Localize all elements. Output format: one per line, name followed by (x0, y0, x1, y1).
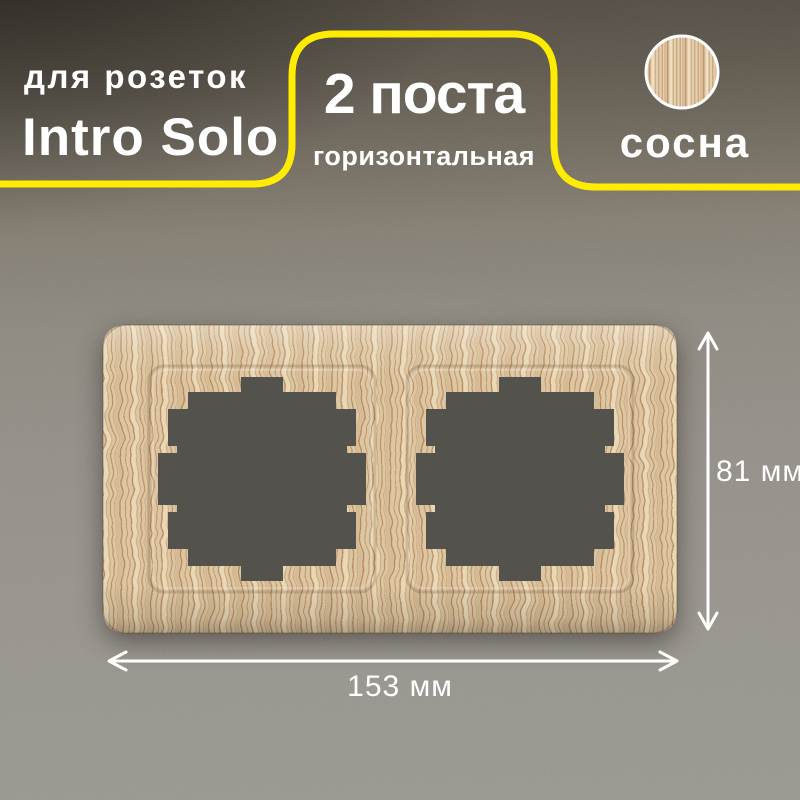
material-name-label: сосна (620, 122, 751, 164)
product-type-label: для розеток (24, 60, 248, 93)
width-dimension-label: 153 мм (347, 672, 453, 702)
badge-orientation: горизонтальная (293, 143, 555, 170)
socket-frame-image (95, 318, 685, 640)
height-dimension-label: 81 мм (716, 457, 800, 487)
product-card: для розеток Intro Solo 2 поста горизонта… (0, 0, 800, 800)
pine-wood-circle-icon (643, 33, 723, 113)
badge-posts-count: 2 поста (293, 66, 555, 123)
product-name-label: Intro Solo (22, 111, 279, 164)
